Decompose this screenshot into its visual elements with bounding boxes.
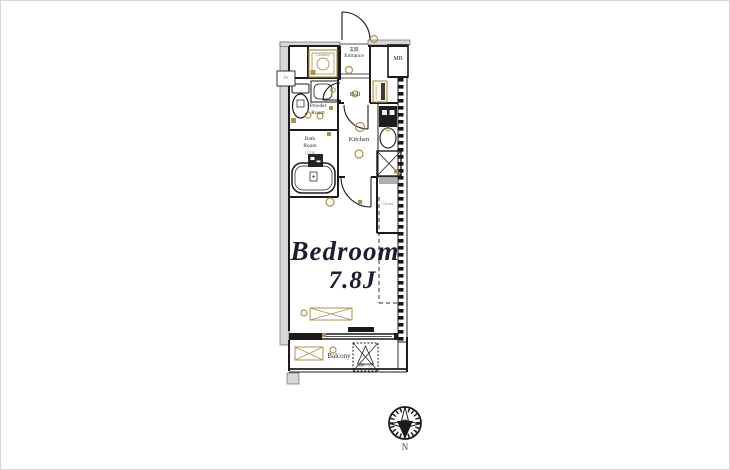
shoes-box-label: Shoes box: [374, 83, 378, 101]
corridor-wall: [398, 77, 407, 342]
hall-label: Hall: [340, 92, 370, 98]
entrance-label: Entrance: [338, 54, 370, 60]
mb-label: MB: [388, 56, 408, 62]
bath-room-label-2: Room: [294, 144, 326, 150]
bath-counter: [308, 154, 323, 167]
balcony-label: Balcony: [322, 353, 356, 360]
closet-label: Closet: [377, 202, 398, 207]
bathtub: [292, 163, 335, 193]
bath-room-label-1: Bath: [294, 137, 326, 143]
floor-plan-drawing: [0, 0, 730, 470]
kitchen-sink: [380, 127, 396, 148]
laundry-label: Laundry: [309, 53, 337, 57]
evacuation-hatch-label: 避難ハッチ: [353, 364, 378, 367]
window: [289, 327, 398, 340]
outdoor-unit: [295, 347, 323, 360]
refrigerator-space: [377, 151, 401, 176]
ps-label: PS: [277, 76, 295, 80]
bedroom-storage-box: [310, 308, 352, 320]
bedroom-size: 7.8J: [300, 268, 405, 293]
powder-room-label-2: Room: [300, 111, 336, 117]
closet-box: [380, 178, 396, 184]
compass-n-label: N: [397, 443, 413, 452]
stove: [379, 106, 397, 127]
bath-room-size: (1116): [294, 151, 326, 155]
entrance-label-jp: 玄関: [340, 48, 368, 53]
powder-room-label-1: Powder: [300, 104, 336, 110]
floor-plan-page: 玄関 Entrance MB Laundry PS Hall Shoes box…: [0, 0, 730, 470]
bedroom-name: Bedroom: [289, 238, 401, 265]
kitchen-label: Kitchen: [342, 137, 376, 144]
compass-icon: [389, 407, 421, 439]
